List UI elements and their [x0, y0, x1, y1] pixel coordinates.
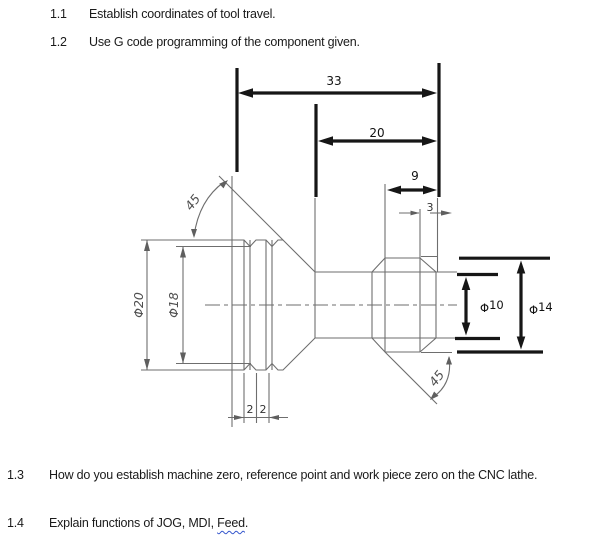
- component-engineering-drawing: 33 20 9 3 Φ20 Φ18 45 45 2 2 Φ10 Φ14: [0, 0, 611, 546]
- dim-groove-widths: [228, 370, 288, 427]
- taper-angle-label: 45: [182, 191, 204, 213]
- dim-overall-length-label: 33: [326, 74, 341, 88]
- dim-overall-length: [238, 88, 437, 97]
- dim-tip-length-label: 3: [427, 201, 434, 214]
- dim-head-length-label: 9: [411, 169, 419, 183]
- dim-head-length: [387, 186, 437, 195]
- head-diameter-label: Φ14: [529, 300, 553, 317]
- dim-tip-length: [399, 210, 452, 215]
- dim-groove-diameter-label: Φ18: [166, 292, 181, 318]
- neck-diameter-label: Φ10: [480, 298, 504, 315]
- groove-width-2-label: 2: [260, 403, 267, 416]
- dim-mid-length-label: 20: [369, 126, 384, 140]
- taper-angle-callout: [191, 176, 283, 240]
- groove-width-1-label: 2: [247, 403, 254, 416]
- dim-major-diameter-label: Φ20: [131, 292, 146, 318]
